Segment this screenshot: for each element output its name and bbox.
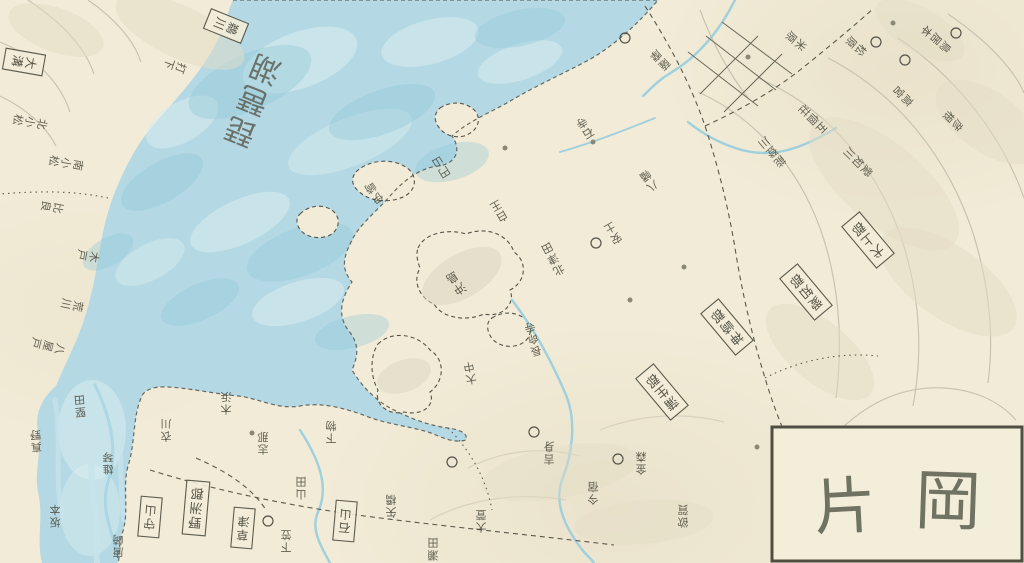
place-label: 石寺 xyxy=(573,114,596,141)
village-dot-marker xyxy=(755,445,760,450)
boundary-dotted-line xyxy=(0,192,108,198)
place-label: 唐崎 xyxy=(113,533,124,559)
place-label: 山田 xyxy=(296,475,307,500)
place-label: 堅田 xyxy=(73,393,86,419)
village-circle-marker xyxy=(447,457,457,467)
town-box-text: 守山 xyxy=(143,503,157,531)
town-box: 石山 xyxy=(333,500,357,542)
village-circle-marker xyxy=(591,238,601,248)
street-grid-line xyxy=(722,22,792,74)
road-line xyxy=(705,8,874,126)
village-dot-marker xyxy=(746,55,751,60)
place-label: 松原 xyxy=(842,33,869,58)
town-box: 守山 xyxy=(138,496,162,538)
place-label: 比良 xyxy=(38,199,65,214)
town-box-text: 草津 xyxy=(236,514,250,542)
town-box: 草津 xyxy=(231,507,255,549)
village-circle-marker xyxy=(529,427,539,437)
place-label: 薩摩 xyxy=(647,47,673,73)
village-dot-marker xyxy=(503,146,508,151)
place-label: 矢橋 xyxy=(386,493,397,519)
place-label: 今宿 xyxy=(588,480,599,506)
map-title-char-left: 片 xyxy=(812,468,878,544)
village-dot-marker xyxy=(591,140,596,145)
village-dot-marker xyxy=(250,431,255,436)
place-label: 米原 xyxy=(782,28,808,53)
place-label: 志那 xyxy=(258,430,269,455)
place-label: 吉身 xyxy=(544,440,555,465)
village-circle-marker xyxy=(900,55,910,65)
street-grid-line xyxy=(700,36,758,94)
place-label: 南小松 xyxy=(46,154,85,171)
contour-line xyxy=(600,416,724,430)
town-box: 大溝 xyxy=(2,48,45,76)
village-dot-marker xyxy=(628,298,633,303)
historical-map-canvas: 打下 北小松 南小松 比良 木戸 荒川 八屋戸 堅田 真野 雄琴 坂本 唐崎 衣… xyxy=(0,0,1024,563)
place-label: 八屋戸 xyxy=(28,336,67,356)
street-grid-line xyxy=(706,36,776,90)
village-dot-marker xyxy=(682,265,687,270)
place-label: 真野 xyxy=(29,428,42,455)
place-label: 下笠 xyxy=(281,528,292,553)
map-title-border xyxy=(772,427,1022,561)
place-label: 雄琴 xyxy=(102,450,114,477)
place-label: 木浜 xyxy=(221,390,232,415)
district-box: 野洲郡 xyxy=(182,480,210,536)
district-box: 神崎郡 xyxy=(701,299,753,355)
place-label: 金森 xyxy=(636,450,647,476)
place-label: 白王 xyxy=(488,197,511,225)
place-label: 大萱 xyxy=(476,508,487,534)
place-label: 北津田 xyxy=(539,239,566,277)
town-street-grid xyxy=(688,22,792,112)
place-label: 八幡 xyxy=(637,167,661,194)
place-label: 衣川 xyxy=(161,417,172,443)
place-label: 大中 xyxy=(462,359,477,387)
town-box-text: 石山 xyxy=(338,507,352,535)
place-label: 瀬田 xyxy=(428,536,439,562)
place-label: 荒川 xyxy=(58,297,85,313)
hill-wash xyxy=(922,63,1024,181)
place-label: 下物 xyxy=(326,419,337,444)
village-circle-marker xyxy=(871,37,881,47)
village-circle-marker xyxy=(263,516,273,526)
place-label: 北小松 xyxy=(10,113,49,130)
street-grid-line xyxy=(724,54,782,112)
river xyxy=(560,118,655,152)
map-title-box: 片 岡 xyxy=(772,427,1022,561)
place-label: 安土 xyxy=(602,219,625,247)
village-dot-marker xyxy=(891,21,896,26)
place-label: 欲賀 xyxy=(678,503,689,529)
map-title-char-right: 岡 xyxy=(914,462,983,541)
district-box: 蒲生郡 xyxy=(636,364,688,420)
place-label: 坂本 xyxy=(50,503,61,528)
